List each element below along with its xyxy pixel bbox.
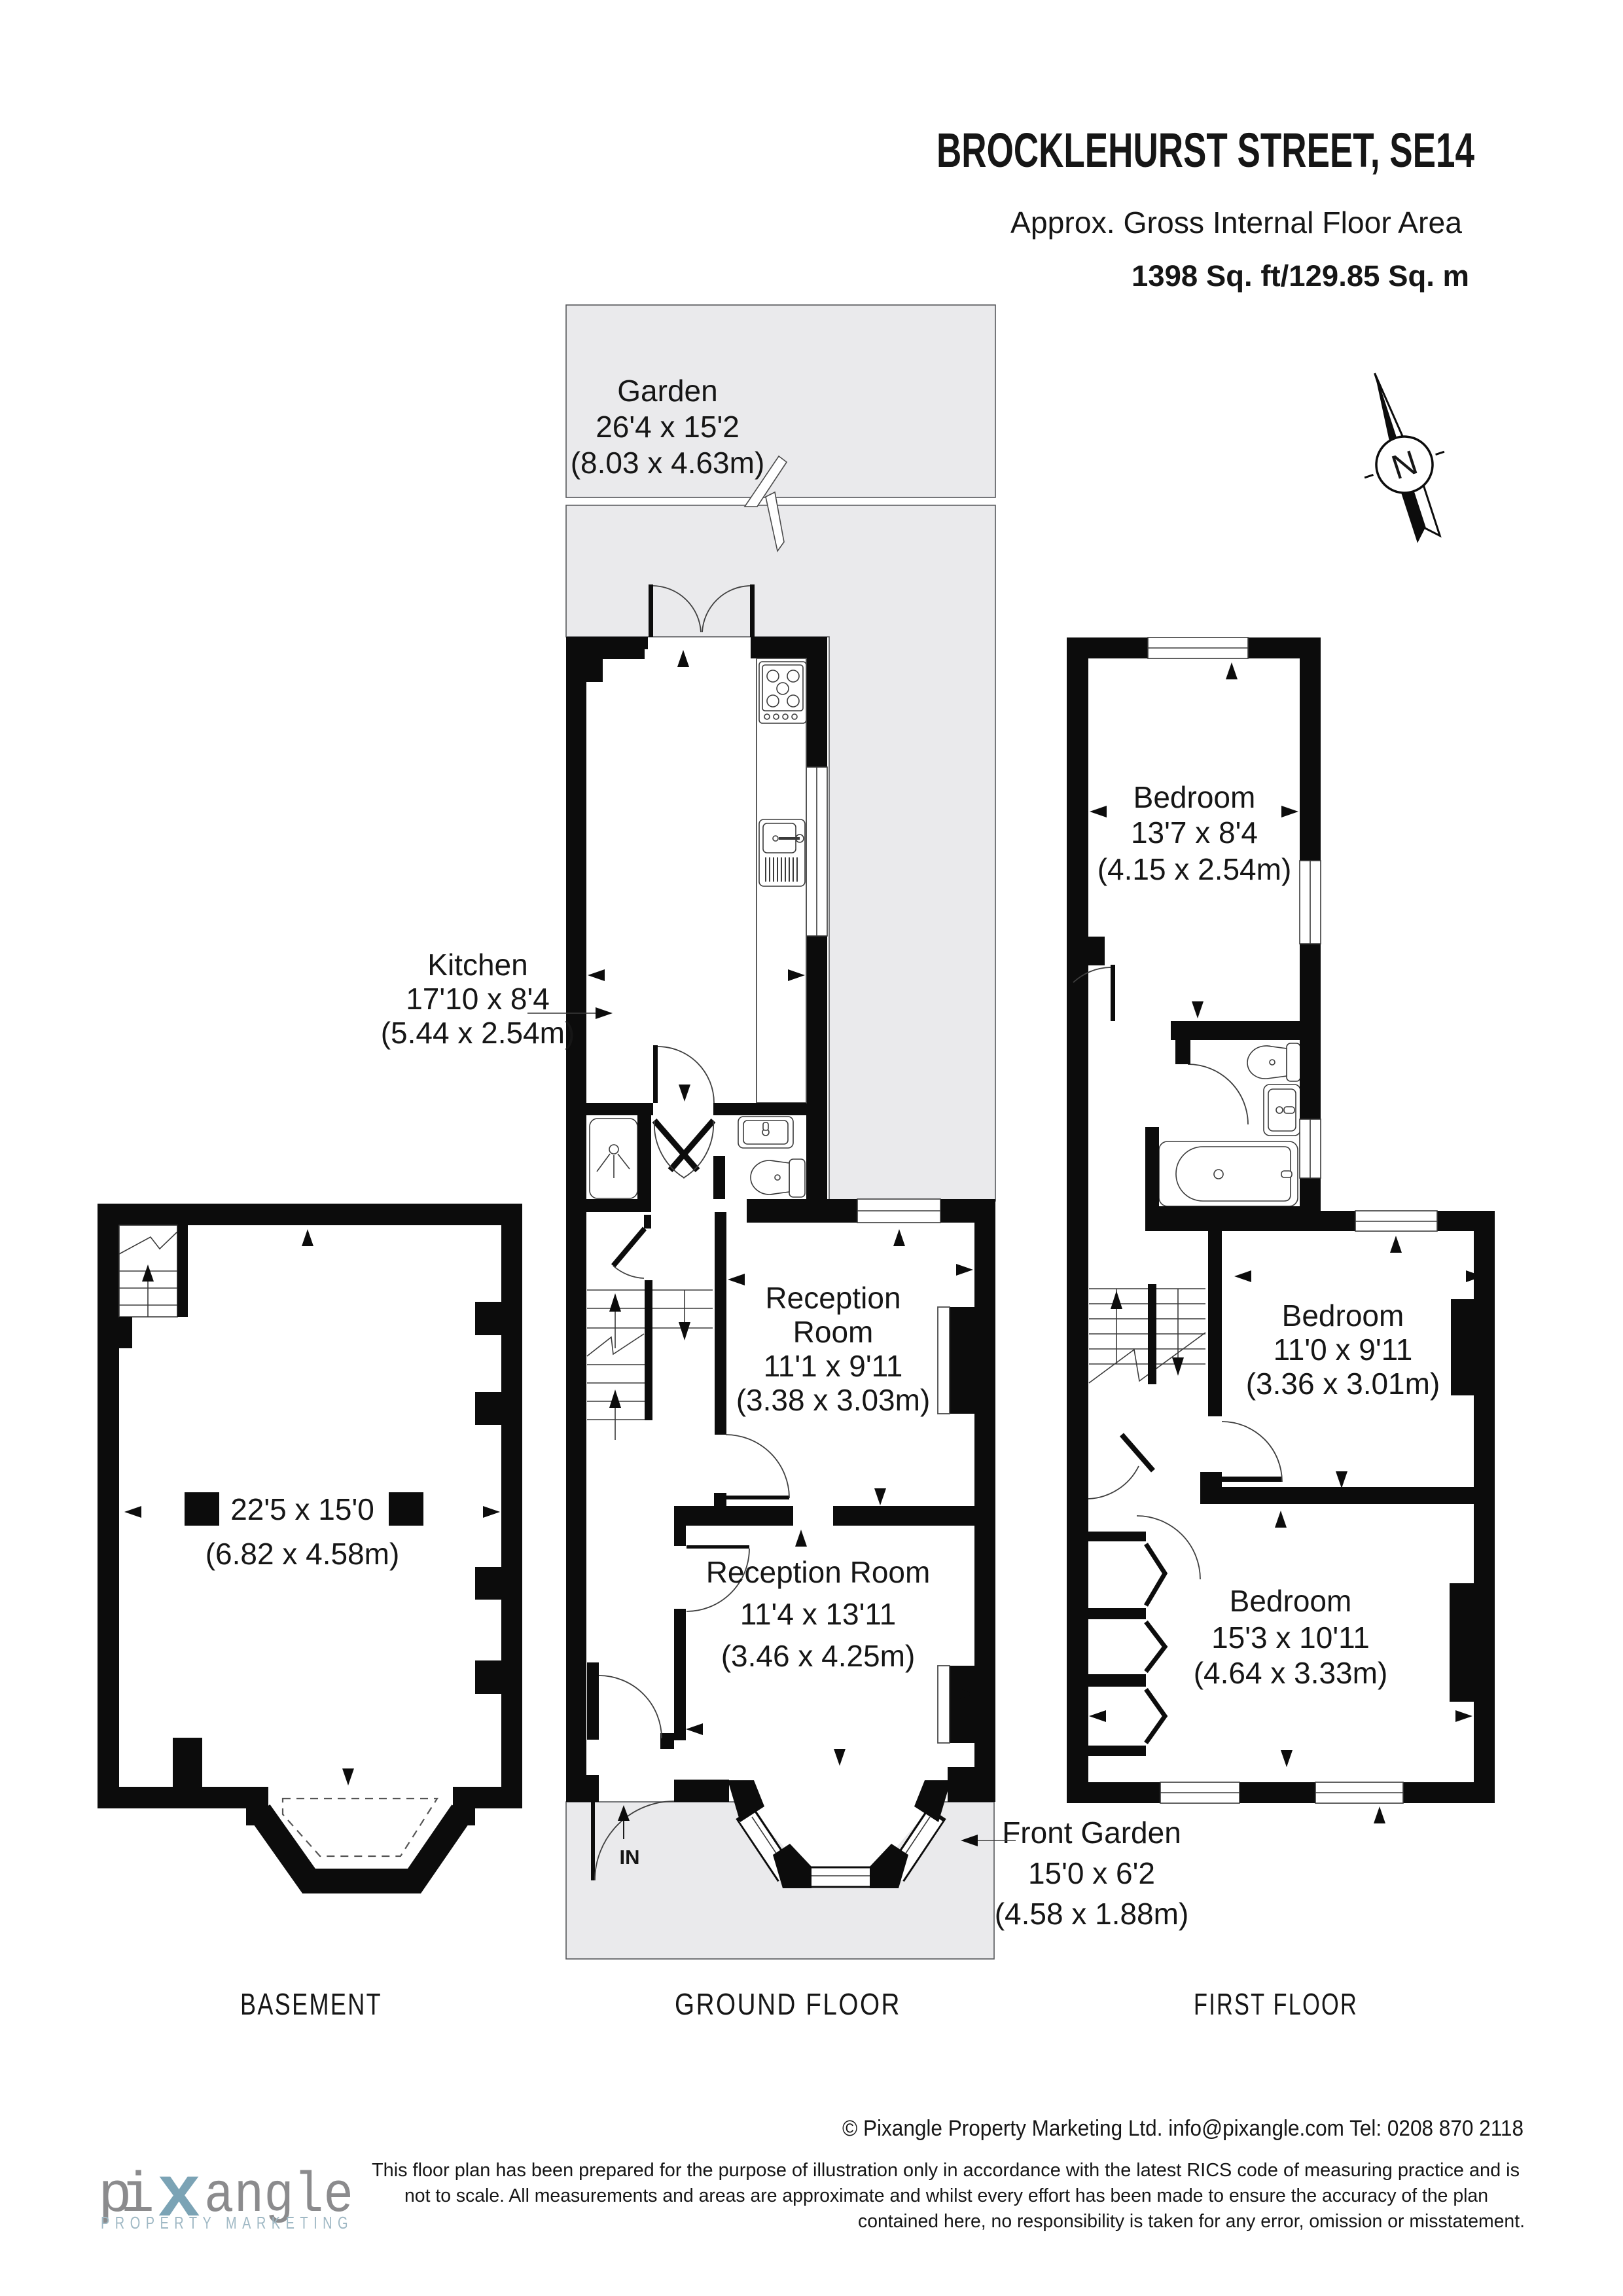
svg-text:(4.64 x 3.33m): (4.64 x 3.33m) xyxy=(1194,1656,1388,1690)
svg-text:(4.15 x 2.54m): (4.15 x 2.54m) xyxy=(1097,852,1292,886)
svg-text:11'0 x 9'11: 11'0 x 9'11 xyxy=(1274,1333,1413,1367)
svg-text:1398 Sq. ft/129.85 Sq. m: 1398 Sq. ft/129.85 Sq. m xyxy=(1132,259,1469,293)
svg-text:Room: Room xyxy=(793,1315,874,1349)
svg-text:26'4 x 15'2: 26'4 x 15'2 xyxy=(596,410,740,444)
svg-text:Reception: Reception xyxy=(765,1281,901,1315)
svg-text:17'10 x 8'4: 17'10 x 8'4 xyxy=(406,982,550,1016)
svg-text:13'7 x 8'4: 13'7 x 8'4 xyxy=(1131,816,1258,850)
svg-text:FIRST FLOOR: FIRST FLOOR xyxy=(1194,1987,1358,2021)
svg-text:Bedroom: Bedroom xyxy=(1282,1299,1404,1333)
svg-text:BROCKLEHURST STREET, SE14: BROCKLEHURST STREET, SE14 xyxy=(936,123,1474,177)
svg-text:BASEMENT: BASEMENT xyxy=(240,1987,382,2021)
svg-text:Garden: Garden xyxy=(617,374,717,408)
svg-text:Front Garden: Front Garden xyxy=(1002,1816,1181,1850)
svg-text:11'1 x 9'11: 11'1 x 9'11 xyxy=(764,1349,903,1383)
svg-text:(8.03 x 4.63m): (8.03 x 4.63m) xyxy=(571,446,765,480)
svg-text:Bedroom: Bedroom xyxy=(1133,780,1256,814)
svg-text:22'5 x 15'0: 22'5 x 15'0 xyxy=(230,1492,374,1526)
svg-text:© Pixangle Property Marketing: © Pixangle Property Marketing Ltd. info@… xyxy=(842,2116,1524,2141)
svg-text:contained here, no responsibil: contained here, no responsibility is tak… xyxy=(858,2211,1525,2232)
svg-text:This floor plan has been prepa: This floor plan has been prepared for th… xyxy=(372,2160,1520,2181)
svg-text:not to scale. All measurements: not to scale. All measurements and areas… xyxy=(404,2185,1488,2206)
svg-text:15'0 x 6'2: 15'0 x 6'2 xyxy=(1028,1856,1155,1890)
svg-text:(3.38 x 3.03m): (3.38 x 3.03m) xyxy=(736,1383,931,1417)
svg-text:(3.36 x 3.01m): (3.36 x 3.01m) xyxy=(1246,1367,1440,1401)
svg-text:(5.44 x 2.54m): (5.44 x 2.54m) xyxy=(381,1016,575,1050)
svg-text:11'4 x 13'11: 11'4 x 13'11 xyxy=(740,1597,896,1631)
svg-text:Reception Room: Reception Room xyxy=(706,1555,931,1589)
svg-text:GROUND FLOOR: GROUND FLOOR xyxy=(675,1987,901,2021)
svg-text:15'3 x 10'11: 15'3 x 10'11 xyxy=(1211,1621,1370,1655)
svg-text:IN: IN xyxy=(620,1846,640,1869)
svg-text:Bedroom: Bedroom xyxy=(1230,1584,1352,1618)
svg-text:Kitchen: Kitchen xyxy=(427,948,527,982)
svg-text:PROPERTY MARKETING: PROPERTY MARKETING xyxy=(101,2213,353,2233)
svg-text:Approx. Gross Internal Floor A: Approx. Gross Internal Floor Area xyxy=(1010,206,1462,240)
svg-text:(4.58 x 1.88m): (4.58 x 1.88m) xyxy=(995,1897,1189,1931)
svg-text:(3.46 x 4.25m): (3.46 x 4.25m) xyxy=(721,1639,916,1673)
svg-text:(6.82 x 4.58m): (6.82 x 4.58m) xyxy=(205,1537,400,1571)
